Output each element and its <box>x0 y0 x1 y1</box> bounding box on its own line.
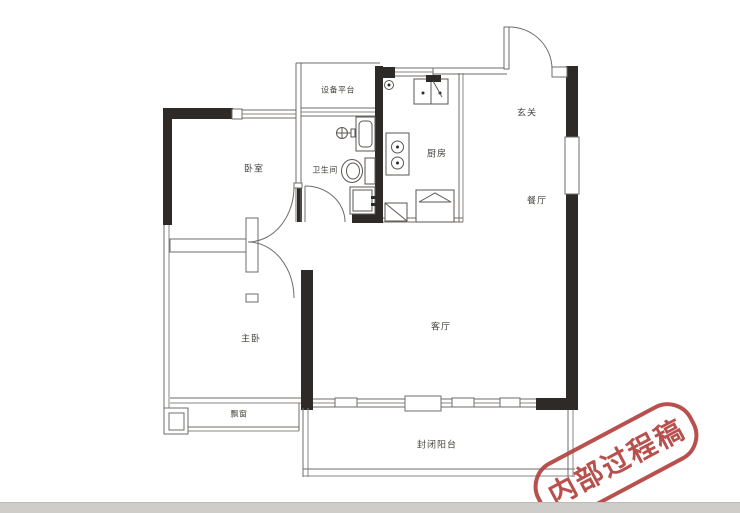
room-label-living: 客厅 <box>431 320 451 333</box>
room-label-equipment-platform: 设备平台 <box>321 85 355 96</box>
window <box>565 137 579 194</box>
entrance-door <box>504 27 552 69</box>
kitchen-corner-cabinet-icon <box>385 203 407 221</box>
bathroom-door <box>305 186 345 222</box>
room-label-master-bedroom: 主卧 <box>241 332 261 345</box>
room-label-entry: 玄关 <box>517 106 537 119</box>
room-label-bay-window: 飘窗 <box>231 409 248 420</box>
room-label-bathroom: 卫生间 <box>312 165 338 176</box>
window-mullion <box>232 109 242 119</box>
room-label-balcony: 封闭阳台 <box>417 438 457 451</box>
room-label-bedroom: 卧室 <box>244 162 264 175</box>
room-label-dining: 餐厅 <box>527 194 547 207</box>
balcony-sliding-door <box>405 396 441 411</box>
floorplan-image: 卧室 设备平台 卫生间 厨房 玄关 餐厅 客厅 主卧 飘窗 封闭阳台 内部过程稿 <box>0 0 740 513</box>
photo-edge <box>0 502 740 513</box>
bathroom-shower-icon <box>350 187 376 214</box>
gas-meter-icon <box>385 81 394 90</box>
kitchen-fridge-icon <box>416 190 454 222</box>
kitchen-stove-icon <box>386 133 409 175</box>
bathroom-toilet-icon <box>342 158 376 184</box>
kitchen-sink-icon <box>414 75 448 104</box>
room-label-kitchen: 厨房 <box>427 147 447 160</box>
bathroom-basin-icon <box>337 117 376 151</box>
